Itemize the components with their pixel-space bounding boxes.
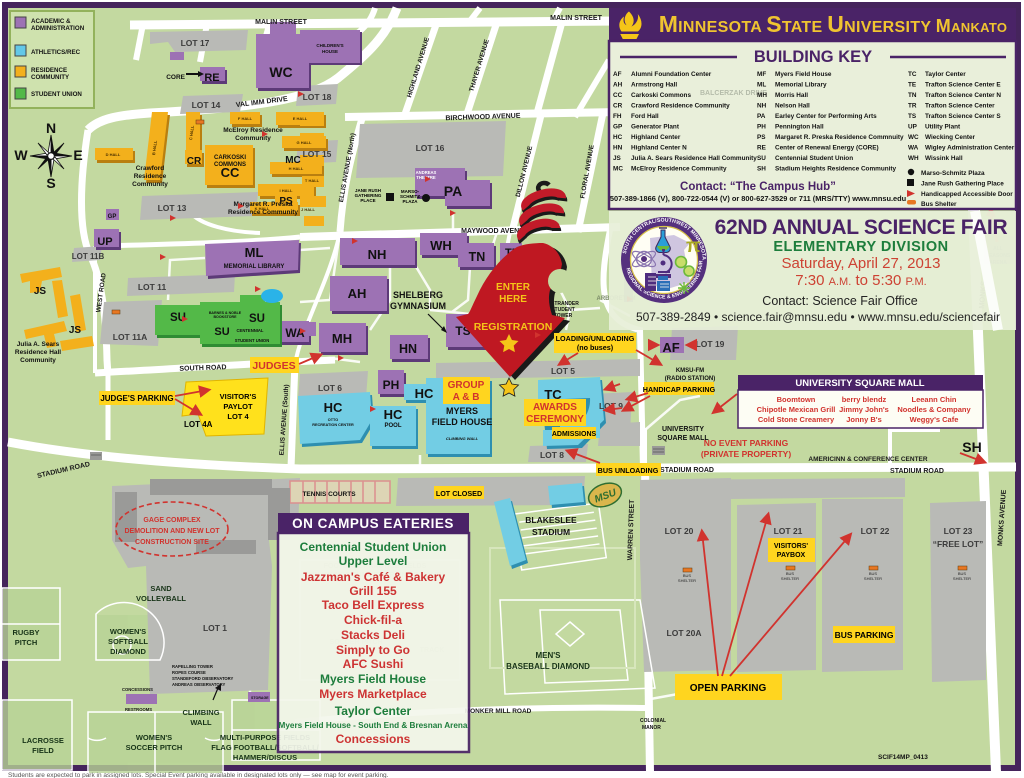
svg-text:CEREMONY: CEREMONY xyxy=(526,414,584,425)
svg-text:HC: HC xyxy=(324,400,343,415)
svg-text:SQUARE MALL: SQUARE MALL xyxy=(657,435,709,442)
svg-text:HOUSE: HOUSE xyxy=(322,49,338,54)
svg-text:LOT 15: LOT 15 xyxy=(303,149,332,159)
svg-text:AF: AF xyxy=(662,340,679,355)
svg-text:Taylor Center: Taylor Center xyxy=(925,71,966,78)
svg-text:UP: UP xyxy=(908,124,918,131)
svg-text:Margaret R. Preska: Margaret R. Preska xyxy=(234,201,293,208)
svg-text:McElroy Residence Community: McElroy Residence Community xyxy=(631,166,727,173)
svg-text:WALL: WALL xyxy=(190,718,212,727)
svg-text:(no buses): (no buses) xyxy=(577,343,614,352)
svg-text:Community: Community xyxy=(132,181,168,188)
svg-text:(RADIO STATION): (RADIO STATION) xyxy=(665,376,715,382)
svg-text:TR: TR xyxy=(908,103,917,110)
svg-text:HC: HC xyxy=(415,386,434,401)
svg-text:LOT 19: LOT 19 xyxy=(696,339,725,349)
svg-text:T HALL: T HALL xyxy=(305,178,320,183)
svg-text:CR: CR xyxy=(187,156,202,167)
svg-text:CONSTRUCTION SITE: CONSTRUCTION SITE xyxy=(135,539,209,546)
svg-text:LOT 13: LOT 13 xyxy=(158,203,187,213)
svg-text:DEMOLITION AND NEW LOT: DEMOLITION AND NEW LOT xyxy=(124,528,220,535)
svg-text:LOT 1: LOT 1 xyxy=(203,623,227,633)
svg-text:SU: SU xyxy=(249,313,265,325)
svg-text:BUS UNLOADING: BUS UNLOADING xyxy=(598,466,659,475)
svg-text:HN: HN xyxy=(613,145,623,152)
svg-text:LOT CLOSED: LOT CLOSED xyxy=(436,489,482,498)
svg-text:Alumni Foundation Center: Alumni Foundation Center xyxy=(631,71,712,78)
svg-text:LACROSSE: LACROSSE xyxy=(22,736,64,745)
svg-text:AMERICINN & CONFERENCE CENTER: AMERICINN & CONFERENCE CENTER xyxy=(808,456,927,463)
svg-text:MF: MF xyxy=(757,71,766,78)
svg-text:PH: PH xyxy=(757,124,766,131)
svg-text:Myers Field House - South End: Myers Field House - South End & Bresnan … xyxy=(279,721,468,730)
svg-text:Wiecking Center: Wiecking Center xyxy=(925,134,976,141)
svg-text:Leeann Chin: Leeann Chin xyxy=(911,395,956,404)
svg-text:RE: RE xyxy=(204,72,219,84)
svg-text:PS: PS xyxy=(757,134,766,141)
svg-text:LOT 20A: LOT 20A xyxy=(667,628,702,638)
svg-text:WC: WC xyxy=(908,134,919,141)
svg-text:Julia A. Sears: Julia A. Sears xyxy=(17,341,60,348)
svg-text:LOT 5: LOT 5 xyxy=(551,366,575,376)
svg-text:Jimmy John's: Jimmy John's xyxy=(839,405,889,414)
svg-text:PA: PA xyxy=(444,183,462,199)
svg-text:HN: HN xyxy=(399,342,417,356)
svg-text:ENTER: ENTER xyxy=(496,282,531,293)
svg-text:GAGE COMPLEX: GAGE COMPLEX xyxy=(143,517,201,524)
svg-text:TS: TS xyxy=(908,113,917,120)
svg-text:Noodles & Company: Noodles & Company xyxy=(897,405,971,414)
svg-text:Trafton Science Center: Trafton Science Center xyxy=(925,103,995,110)
svg-text:WC: WC xyxy=(269,64,292,80)
svg-text:PAYBOX: PAYBOX xyxy=(777,552,806,559)
svg-text:JUDGE'S PARKING: JUDGE'S PARKING xyxy=(100,394,173,403)
svg-text:HERE: HERE xyxy=(499,294,527,305)
svg-text:G HALL: G HALL xyxy=(297,140,312,145)
svg-text:MEMORIAL LIBRARY: MEMORIAL LIBRARY xyxy=(224,264,285,270)
svg-text:RE: RE xyxy=(757,145,767,152)
svg-text:MC: MC xyxy=(285,155,301,166)
svg-text:LOT 11B: LOT 11B xyxy=(72,252,105,261)
svg-text:WH: WH xyxy=(908,155,919,162)
svg-text:Centennial Student Union: Centennial Student Union xyxy=(775,155,853,162)
svg-text:MH: MH xyxy=(332,331,352,346)
svg-text:MYERS: MYERS xyxy=(446,406,478,416)
svg-text:FH: FH xyxy=(613,113,622,120)
svg-text:SOCCER PITCH: SOCCER PITCH xyxy=(126,743,183,752)
svg-text:HC: HC xyxy=(613,134,623,141)
svg-text:Residence: Residence xyxy=(134,173,167,180)
svg-text:UNIVERSITY: UNIVERSITY xyxy=(662,426,704,433)
svg-text:TN: TN xyxy=(469,250,486,264)
svg-text:LOT 22: LOT 22 xyxy=(861,526,890,536)
svg-text:STADIUM ROAD: STADIUM ROAD xyxy=(660,467,714,474)
svg-text:LOT 11A: LOT 11A xyxy=(113,332,147,342)
svg-text:WA: WA xyxy=(908,145,919,152)
svg-text:CONCESSIONS: CONCESSIONS xyxy=(122,687,153,692)
svg-text:SOFTBALL: SOFTBALL xyxy=(108,637,148,646)
svg-text:Residence Community: Residence Community xyxy=(228,209,298,216)
svg-text:SAND: SAND xyxy=(150,584,172,593)
svg-text:Residence Hall: Residence Hall xyxy=(15,349,61,356)
svg-text:Armstrong Hall: Armstrong Hall xyxy=(631,82,677,89)
svg-text:Stadium Heights Residence Comm: Stadium Heights Residence Community xyxy=(775,166,897,173)
svg-text:RECREATION CENTER: RECREATION CENTER xyxy=(312,423,354,427)
svg-text:Weggy's Cafe: Weggy's Cafe xyxy=(910,415,959,424)
svg-text:Wissink Hall: Wissink Hall xyxy=(925,155,963,162)
svg-text:Jane Rush Gathering Place: Jane Rush Gathering Place xyxy=(921,181,1004,188)
svg-text:Trafton Science Center E: Trafton Science Center E xyxy=(925,82,1001,89)
svg-text:D HALL: D HALL xyxy=(106,152,121,157)
svg-text:Bus Shelter: Bus Shelter xyxy=(921,201,957,208)
svg-text:ADMINISTRATION: ADMINISTRATION xyxy=(31,25,85,32)
svg-text:JUDGES: JUDGES xyxy=(252,360,295,372)
svg-text:GYMNASIUM: GYMNASIUM xyxy=(390,301,446,311)
svg-text:GP: GP xyxy=(108,214,117,220)
svg-text:UP: UP xyxy=(97,236,112,248)
svg-text:Myers Field House: Myers Field House xyxy=(775,71,832,78)
svg-text:VISITOR'S: VISITOR'S xyxy=(220,392,257,401)
svg-text:Pennington Hall: Pennington Hall xyxy=(775,124,824,131)
svg-text:HAMMER/DISCUS: HAMMER/DISCUS xyxy=(233,753,297,762)
svg-text:RESTROOMS: RESTROOMS xyxy=(125,707,152,712)
svg-text:W: W xyxy=(14,147,28,163)
svg-text:CARKOSKI: CARKOSKI xyxy=(214,155,246,161)
svg-text:NH: NH xyxy=(757,103,767,110)
svg-text:MALIN STREET: MALIN STREET xyxy=(255,19,307,26)
svg-text:SHELTER: SHELTER xyxy=(678,578,696,583)
svg-text:OPEN PARKING: OPEN PARKING xyxy=(690,683,767,694)
svg-text:E HALL: E HALL xyxy=(293,116,308,121)
svg-text:CLIMBING WALL: CLIMBING WALL xyxy=(446,436,479,441)
svg-text:LOT 4: LOT 4 xyxy=(227,412,249,421)
svg-text:TN: TN xyxy=(908,92,917,99)
svg-text:RUGBY: RUGBY xyxy=(12,628,39,637)
svg-text:Earley Center for Performing A: Earley Center for Performing Arts xyxy=(775,113,877,120)
svg-text:Handicapped Accessible Door: Handicapped Accessible Door xyxy=(921,191,1013,198)
svg-text:Ford Hall: Ford Hall xyxy=(631,113,659,120)
svg-text:TE: TE xyxy=(908,82,917,89)
svg-text:STUDENT UNION: STUDENT UNION xyxy=(31,91,82,98)
svg-text:UNIVERSITY SQUARE MALL: UNIVERSITY SQUARE MALL xyxy=(795,378,924,389)
svg-text:TC: TC xyxy=(908,71,917,78)
svg-text:berry blendz: berry blendz xyxy=(842,395,887,404)
svg-text:LOT 6: LOT 6 xyxy=(318,383,342,393)
svg-text:PA: PA xyxy=(757,113,766,120)
svg-text:Community: Community xyxy=(235,135,271,142)
svg-text:507-389-1866 (V), 800-722-054: 507-389-1866 (V), 800-722-0544 (V) or 80… xyxy=(610,194,907,203)
svg-text:CENTENNIAL: CENTENNIAL xyxy=(237,328,264,333)
svg-text:OTTO: OTTO xyxy=(328,418,339,422)
svg-text:CLIMBING: CLIMBING xyxy=(182,708,219,717)
svg-text:507-389-2849 • science.fair@: 507-389-2849 • science.fair@mnsu.edu • w… xyxy=(636,310,1000,324)
svg-text:ATHLETICS/REC: ATHLETICS/REC xyxy=(31,49,81,56)
svg-text:Crawford: Crawford xyxy=(136,165,165,172)
svg-text:Nelson Hall: Nelson Hall xyxy=(775,103,810,110)
svg-text:POOL: POOL xyxy=(384,423,401,429)
svg-text:Simply to Go: Simply to Go xyxy=(336,643,410,657)
svg-text:REGISTRATION: REGISTRATION xyxy=(474,321,553,333)
svg-text:Myers Field House: Myers Field House xyxy=(320,672,426,686)
svg-text:STORAGE: STORAGE xyxy=(251,696,269,700)
svg-text:SH: SH xyxy=(962,439,981,455)
svg-text:BUS PARKING: BUS PARKING xyxy=(835,630,894,640)
svg-text:MC: MC xyxy=(613,166,623,173)
svg-text:CC: CC xyxy=(613,92,623,99)
svg-text:PITCH: PITCH xyxy=(15,638,38,647)
svg-text:Crawford Residence Community: Crawford Residence Community xyxy=(631,103,730,110)
svg-text:Chipotle Mexican Grill: Chipotle Mexican Grill xyxy=(757,405,836,414)
svg-text:MEN'S: MEN'S xyxy=(535,651,561,660)
svg-text:Chick-fil-a: Chick-fil-a xyxy=(344,613,402,627)
svg-text:JS: JS xyxy=(613,155,622,162)
svg-text:ELEMENTARY DIVISION: ELEMENTARY DIVISION xyxy=(773,239,948,255)
svg-text:Jonny B's: Jonny B's xyxy=(846,415,882,424)
svg-text:MANOR: MANOR xyxy=(642,725,661,731)
svg-text:AH: AH xyxy=(613,82,623,89)
svg-text:Saturday, April 27, 2013: Saturday, April 27, 2013 xyxy=(782,255,941,272)
svg-text:H HALL: H HALL xyxy=(289,166,304,171)
svg-text:ANDREAS OBSERVATORY: ANDREAS OBSERVATORY xyxy=(172,682,225,687)
svg-text:BLAKESLEE: BLAKESLEE xyxy=(525,515,577,525)
svg-text:COMMUNITY: COMMUNITY xyxy=(31,74,70,81)
svg-text:PLAZA: PLAZA xyxy=(403,199,419,204)
svg-text:Contact: Science Fair Office: Contact: Science Fair Office xyxy=(762,294,917,308)
svg-text:Grill 155: Grill 155 xyxy=(349,584,397,598)
svg-text:Carkoski Commons: Carkoski Commons xyxy=(631,92,691,99)
svg-text:Memorial Library: Memorial Library xyxy=(775,82,827,89)
svg-text:DIAMOND: DIAMOND xyxy=(110,647,146,656)
svg-text:LOT 20: LOT 20 xyxy=(665,526,694,536)
svg-text:CR: CR xyxy=(613,103,623,110)
svg-text:ML: ML xyxy=(245,245,264,260)
svg-text:ROPES COURSE: ROPES COURSE xyxy=(172,670,206,675)
svg-text:WOMEN'S: WOMEN'S xyxy=(110,627,146,636)
svg-text:ON CAMPUS EATERIES: ON CAMPUS EATERIES xyxy=(292,516,454,531)
svg-text:McElroy Residence: McElroy Residence xyxy=(223,127,283,134)
svg-text:SCIF14MP_0413: SCIF14MP_0413 xyxy=(878,754,928,761)
svg-text:SHELBERG: SHELBERG xyxy=(393,290,443,300)
svg-text:ML: ML xyxy=(757,82,766,89)
svg-text:LOT 17: LOT 17 xyxy=(181,38,210,48)
svg-text:SHELTER: SHELTER xyxy=(864,576,882,581)
svg-text:LOADING/UNLOADING: LOADING/UNLOADING xyxy=(556,334,635,343)
svg-text:AF: AF xyxy=(613,71,622,78)
svg-text:FIELD: FIELD xyxy=(32,746,54,755)
svg-text:Utility Plant: Utility Plant xyxy=(925,124,961,131)
svg-text:S: S xyxy=(46,175,55,191)
svg-text:SHELTER: SHELTER xyxy=(781,576,799,581)
svg-text:Concessions: Concessions xyxy=(336,732,411,746)
svg-text:A & B: A & B xyxy=(453,392,480,403)
svg-text:Centennial Student Union: Centennial Student Union xyxy=(300,540,447,554)
svg-text:LOT 14: LOT 14 xyxy=(192,100,221,110)
svg-text:VOLLEYBALL: VOLLEYBALL xyxy=(136,594,186,603)
svg-text:Trafton Science Center N: Trafton Science Center N xyxy=(925,92,1001,99)
svg-text:AH: AH xyxy=(348,286,367,301)
svg-text:LOT 18: LOT 18 xyxy=(303,92,332,102)
svg-text:WOMEN'S: WOMEN'S xyxy=(136,733,172,742)
svg-text:Upper Level: Upper Level xyxy=(339,554,408,568)
svg-text:PAYLOT: PAYLOT xyxy=(223,402,253,411)
svg-text:Contact: “The Campus Hub”: Contact: “The Campus Hub” xyxy=(680,181,836,193)
svg-text:MH: MH xyxy=(757,92,767,99)
svg-text:SU: SU xyxy=(757,155,766,162)
svg-text:WH: WH xyxy=(430,238,452,253)
svg-text:TENNIS COURTS: TENNIS COURTS xyxy=(302,491,356,498)
svg-text:F HALL: F HALL xyxy=(238,116,253,121)
svg-text:Cold Stone Creamery: Cold Stone Creamery xyxy=(758,415,835,424)
svg-text:BUILDING KEY: BUILDING KEY xyxy=(754,48,872,66)
svg-text:SHELTER: SHELTER xyxy=(953,576,971,581)
svg-text:COLONIAL: COLONIAL xyxy=(640,718,666,724)
svg-text:VISITORS': VISITORS' xyxy=(774,543,809,550)
svg-text:SU: SU xyxy=(214,326,229,338)
svg-text:Highland Center: Highland Center xyxy=(631,134,681,141)
svg-text:SH: SH xyxy=(757,166,766,173)
svg-text:FIELD HOUSE: FIELD HOUSE xyxy=(432,417,493,427)
svg-text:RESIDENCE: RESIDENCE xyxy=(31,67,67,74)
svg-text:Jazzman's Café & Bakery: Jazzman's Café & Bakery xyxy=(301,570,446,584)
svg-text:STUDENT UNION: STUDENT UNION xyxy=(235,338,269,343)
svg-text:MONKER MILL ROAD: MONKER MILL ROAD xyxy=(465,708,532,715)
svg-text:MALIN STREET: MALIN STREET xyxy=(550,15,602,22)
svg-text:E: E xyxy=(73,147,82,163)
svg-text:LOT 4A: LOT 4A xyxy=(184,420,213,429)
svg-text:Stacks Deli: Stacks Deli xyxy=(341,628,405,642)
svg-text:HANDICAP PARKING: HANDICAP PARKING xyxy=(643,385,716,394)
svg-text:Marso-Schmitz Plaza: Marso-Schmitz Plaza xyxy=(921,170,985,177)
svg-text:PH: PH xyxy=(383,378,400,392)
svg-text:AFC Sushi: AFC Sushi xyxy=(343,657,404,671)
svg-text:LOT 16: LOT 16 xyxy=(416,143,445,153)
svg-text:“FREE LOT”: “FREE LOT” xyxy=(933,539,984,549)
svg-text:Myers Marketplace: Myers Marketplace xyxy=(319,687,427,701)
svg-text:GROUP: GROUP xyxy=(448,380,485,391)
svg-text:J HALL: J HALL xyxy=(301,207,316,212)
svg-text:Community: Community xyxy=(20,357,56,364)
svg-text:Students are expected to park: Students are expected to park in assigne… xyxy=(8,772,389,778)
svg-text:CHILDREN'S: CHILDREN'S xyxy=(316,43,343,48)
svg-text:Taco Bell Express: Taco Bell Express xyxy=(322,598,425,612)
svg-text:STADIUM: STADIUM xyxy=(532,527,570,537)
svg-text:Margaret R. Preska Residence C: Margaret R. Preska Residence Commnuity xyxy=(775,134,904,141)
svg-text:BOOKSTORE: BOOKSTORE xyxy=(213,315,237,319)
svg-text:N: N xyxy=(46,120,56,136)
svg-text:Center of Renewal Energy (CORE: Center of Renewal Energy (CORE) xyxy=(775,145,879,152)
svg-text:62ND ANNUAL SCIENCE FAIR: 62ND ANNUAL SCIENCE FAIR xyxy=(715,216,1008,239)
svg-text:Boomtown: Boomtown xyxy=(777,395,816,404)
svg-text:STADIUM ROAD: STADIUM ROAD xyxy=(890,468,944,475)
svg-text:Julia A. Sears Residence Hall: Julia A. Sears Residence Hall Community xyxy=(631,155,757,162)
svg-text:Trafton Science Center S: Trafton Science Center S xyxy=(925,113,1001,120)
svg-text:LOT 11: LOT 11 xyxy=(138,282,167,292)
svg-text:KMSU-FM: KMSU-FM xyxy=(676,368,704,374)
svg-text:WA: WA xyxy=(285,326,305,340)
svg-text:LOT 23: LOT 23 xyxy=(944,526,973,536)
svg-text:Taylor Center: Taylor Center xyxy=(335,704,412,718)
svg-text:Generator Plant: Generator Plant xyxy=(631,124,680,131)
svg-text:JS: JS xyxy=(34,286,47,297)
svg-text:π: π xyxy=(686,236,701,257)
svg-text:I HALL: I HALL xyxy=(280,188,293,193)
svg-text:NO EVENT PARKING: NO EVENT PARKING xyxy=(704,438,789,448)
svg-text:HC: HC xyxy=(384,407,403,422)
svg-text:NH: NH xyxy=(368,247,387,262)
svg-text:AWARDS: AWARDS xyxy=(533,402,577,413)
svg-text:JS: JS xyxy=(69,325,82,336)
svg-text:ADMISSIONS: ADMISSIONS xyxy=(552,431,597,438)
svg-text:LOT 8: LOT 8 xyxy=(540,450,564,460)
svg-text:GP: GP xyxy=(613,124,623,131)
svg-text:CORE: CORE xyxy=(166,74,185,81)
svg-text:Morris Hall: Morris Hall xyxy=(775,92,808,99)
svg-text:PLACE: PLACE xyxy=(360,198,375,203)
svg-text:(PRIVATE PROPERTY): (PRIVATE PROPERTY) xyxy=(701,449,792,459)
svg-text:RAPELLING TOWER: RAPELLING TOWER xyxy=(172,664,213,669)
svg-text:Highland Center N: Highland Center N xyxy=(631,145,687,152)
svg-text:STANDEFORD OBSERVATORY: STANDEFORD OBSERVATORY xyxy=(172,676,234,681)
svg-text:LOT 21: LOT 21 xyxy=(774,526,803,536)
svg-text:Wigley Administration Center: Wigley Administration Center xyxy=(925,145,1015,152)
svg-text:ACADEMIC &: ACADEMIC & xyxy=(31,18,71,25)
svg-text:BASEBALL DIAMOND: BASEBALL DIAMOND xyxy=(506,662,590,671)
svg-text:COMMONS: COMMONS xyxy=(214,162,246,168)
